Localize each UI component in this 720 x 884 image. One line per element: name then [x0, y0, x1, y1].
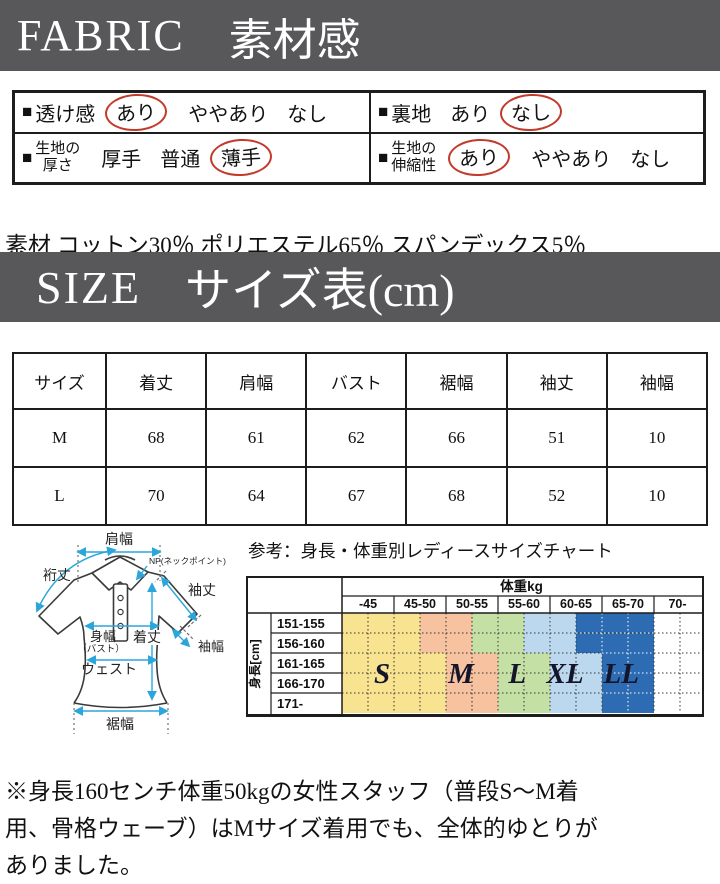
fabric-spec-cell: ■裏地ありなし: [370, 92, 704, 133]
garment-length-label: 着丈: [133, 629, 161, 645]
body-width-label: 身幅: [90, 629, 116, 644]
size-table-cell: 68: [406, 467, 506, 525]
chart-band-LL: [576, 633, 654, 653]
chart-size-letter: M: [447, 658, 475, 690]
size-table-row: L706467685210: [13, 467, 707, 525]
weight-col-label: 55-60: [508, 597, 540, 611]
height-header: 身長[cm]: [247, 639, 262, 688]
fabric-banner-en: FABRIC: [17, 10, 185, 61]
shoulder-width-label: 肩幅: [105, 531, 133, 547]
size-table-head: サイズ着丈肩幅バスト裾幅袖丈袖幅: [13, 353, 707, 409]
size-table-cell: 52: [507, 467, 607, 525]
size-table-cell: 67: [306, 467, 406, 525]
size-table-header: 袖幅: [607, 353, 707, 409]
weight-col-label: 70-: [668, 597, 686, 611]
fabric-option: なし: [630, 143, 670, 172]
chart-band-S: [342, 633, 420, 653]
fabric-option-selected: あり: [447, 138, 511, 178]
size-table-cell: M: [13, 409, 106, 467]
fabric-attribute-label: 裏地: [391, 98, 431, 127]
chart-size-letter: LL: [603, 658, 639, 690]
size-table-header: サイズ: [13, 353, 106, 409]
neck-point-label: NP(ネックポイント): [149, 556, 226, 566]
fabric-option: 厚手: [101, 143, 141, 172]
chart-band-S: [342, 613, 420, 633]
size-banner-en: SIZE: [36, 261, 141, 314]
weight-col-label: 65-70: [612, 597, 644, 611]
fabric-attribute-label: 生地の伸縮性: [391, 141, 436, 176]
size-table-header: 袖丈: [507, 353, 607, 409]
bust-label: （バスト）: [77, 643, 125, 655]
fabric-banner-ja: 素材感: [229, 4, 361, 68]
fitting-note: ※身長160センチ体重50kgの女性スタッフ（普段S〜M着 用、骨格ウェーブ）は…: [5, 773, 717, 884]
size-table-cell: 10: [607, 467, 707, 525]
size-table-header: 着丈: [106, 353, 206, 409]
height-row-label: 171-: [277, 696, 303, 711]
sleeve-length-label: 袖丈: [188, 582, 216, 598]
fabric-spec-table: ■透け感ありややありなし■裏地ありなし■生地の厚さ厚手普通薄手■生地の伸縮性あり…: [12, 90, 706, 185]
size-table-cell: 62: [306, 409, 406, 467]
weight-col-label: 60-65: [560, 597, 592, 611]
size-section-banner: SIZE サイズ表(cm): [0, 252, 720, 322]
size-table-header: 裾幅: [406, 353, 506, 409]
size-table-body: M686162665110L706467685210: [13, 409, 707, 525]
fabric-attribute-label: 生地の厚さ: [35, 141, 80, 176]
hem-width-label: 裾幅: [106, 716, 134, 732]
fabric-option-selected: なし: [499, 92, 563, 132]
garment-measure-diagram: 肩幅 裄丈 NP(ネックポイント) 袖丈 袖幅 身幅 （バスト） 着丈 ウェスト…: [8, 531, 240, 743]
height-row-label: 161-165: [277, 656, 325, 671]
fabric-option: なし: [287, 98, 327, 127]
product-spec-page: { "banners": { "fabric_en": "FABRIC", "f…: [0, 0, 720, 850]
chart-size-letter: XL: [546, 658, 584, 690]
size-table-cell: 68: [106, 409, 206, 467]
bullet-square-icon: ■: [22, 148, 32, 168]
fabric-option: ややあり: [188, 98, 268, 127]
size-table-cell: 70: [106, 467, 206, 525]
chart-size-letter: S: [374, 658, 390, 690]
bullet-square-icon: ■: [22, 102, 32, 122]
size-table: サイズ着丈肩幅バスト裾幅袖丈袖幅 M686162665110L706467685…: [12, 352, 708, 526]
bullet-square-icon: ■: [378, 102, 388, 122]
fabric-option-selected: 薄手: [209, 138, 273, 178]
size-table-cell: 64: [206, 467, 306, 525]
fabric-option-selected: あり: [104, 92, 168, 132]
bullet-square-icon: ■: [378, 148, 388, 168]
reference-chart-title: 参考：身長・体重別レディースサイズチャート: [248, 538, 613, 563]
height-row-label: 151-155: [277, 616, 325, 631]
size-table-cell: 51: [507, 409, 607, 467]
height-row-label: 156-160: [277, 636, 325, 651]
fabric-section-banner: FABRIC 素材感: [0, 0, 720, 71]
size-table-cell: L: [13, 467, 106, 525]
size-chart: 体重kg-4545-5050-5555-6060-6565-7070-151-1…: [246, 576, 704, 718]
fabric-attribute-label: 透け感: [35, 98, 95, 127]
fabric-option: あり: [450, 98, 490, 127]
weight-col-label: 50-55: [456, 597, 488, 611]
size-table-header: バスト: [306, 353, 406, 409]
size-table-header: 肩幅: [206, 353, 306, 409]
sleeve-reach-label: 裄丈: [43, 567, 71, 583]
fabric-spec-cell: ■生地の伸縮性ありややありなし: [370, 133, 704, 183]
weight-col-label: -45: [359, 597, 377, 611]
chart-size-letter: L: [507, 658, 526, 690]
size-chart-svg: 体重kg-4545-5050-5555-6060-6565-7070-151-1…: [246, 576, 704, 718]
weight-col-label: 45-50: [404, 597, 436, 611]
fabric-spec-cell: ■生地の厚さ厚手普通薄手: [14, 133, 370, 183]
size-table-cell: 66: [406, 409, 506, 467]
fabric-option: ややあり: [531, 143, 611, 172]
size-table-cell: 10: [607, 409, 707, 467]
size-table-cell: 61: [206, 409, 306, 467]
sleeve-width-label: 袖幅: [198, 639, 224, 654]
size-table-row: M686162665110: [13, 409, 707, 467]
height-row-label: 166-170: [277, 676, 325, 691]
chart-band-LL: [576, 613, 654, 633]
weight-header: 体重kg: [500, 578, 543, 594]
size-banner-ja: サイズ表(cm): [185, 254, 454, 320]
waist-label: ウェスト: [81, 661, 137, 677]
fabric-option: 普通: [160, 143, 200, 172]
fabric-spec-cell: ■透け感ありややありなし: [14, 92, 370, 133]
